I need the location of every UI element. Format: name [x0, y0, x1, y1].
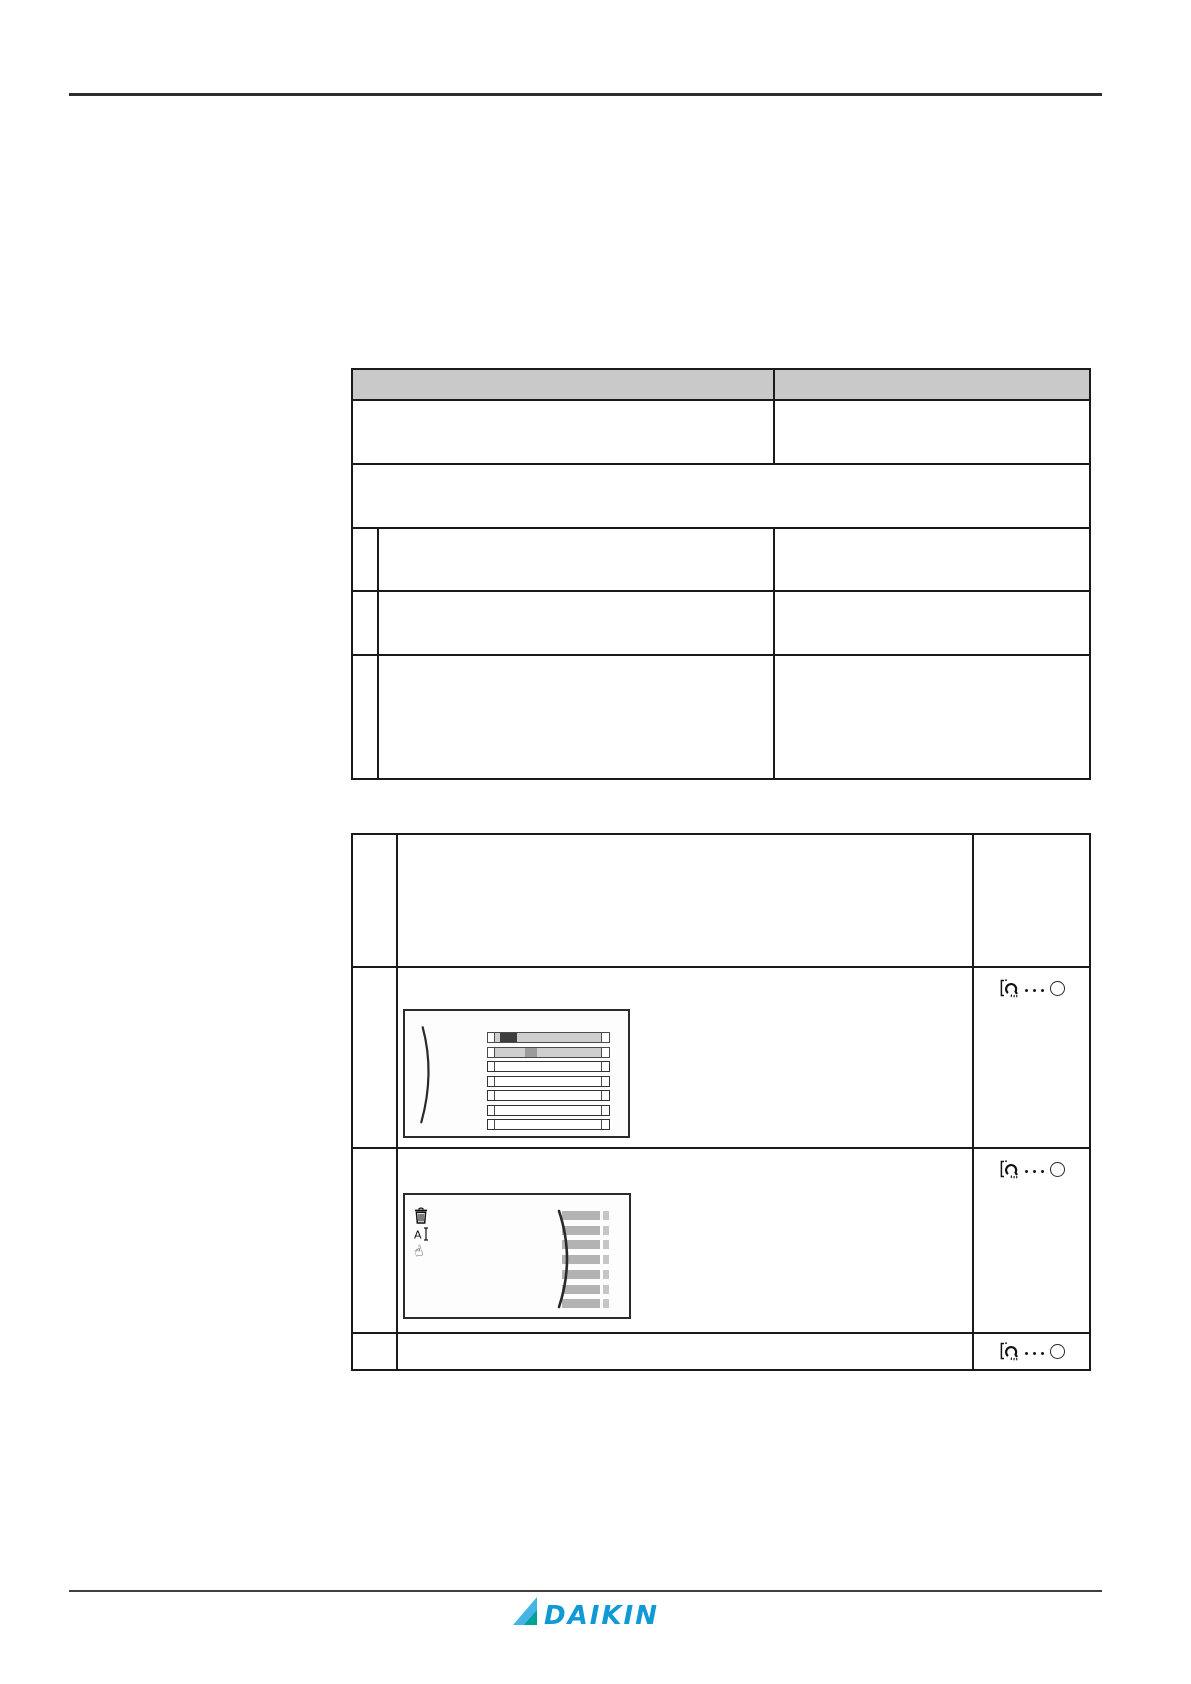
ellipsis-dot	[1025, 1170, 1028, 1173]
table1-row4-marker-cell	[352, 591, 378, 655]
table1-row2-merged-cell	[352, 464, 1090, 528]
ellipsis-dot	[1033, 989, 1036, 992]
menu-line-bar	[487, 1105, 610, 1116]
table1-row3-cell-right	[774, 528, 1090, 591]
ellipsis-dot	[1041, 1170, 1044, 1173]
menu-line-bar	[487, 1119, 610, 1130]
menu-line-bar	[487, 1032, 610, 1043]
table2-row1-cell-right	[973, 834, 1090, 967]
table1-row5-marker-cell	[352, 655, 378, 779]
table2-row3-step-cell	[352, 1148, 397, 1333]
ellipsis-dot	[1033, 1352, 1036, 1355]
button-circle-icon	[1050, 981, 1065, 996]
table2-row1-step-cell	[352, 834, 397, 967]
table2-row4-step-cell	[352, 1333, 397, 1370]
ellipsis-dot	[1025, 989, 1028, 992]
press-hold-button-indicator	[998, 978, 1065, 998]
table2-row1-cell-middle	[397, 834, 973, 967]
press-hold-button-indicator	[998, 1159, 1065, 1179]
header-rule	[69, 93, 1102, 96]
table1-row3-marker-cell	[352, 528, 378, 591]
table1-row4-cell-middle	[378, 591, 774, 655]
screen-bezel-curve	[405, 1195, 633, 1321]
button-circle-icon	[1050, 1162, 1065, 1177]
press-hold-button-indicator	[998, 1341, 1065, 1361]
ellipsis-dot	[1025, 1352, 1028, 1355]
table2-row3-cell-right	[973, 1148, 1090, 1333]
controller-menu-screen-image	[403, 1009, 630, 1138]
table1-header-cell-right	[774, 369, 1090, 400]
menu-line-bar	[487, 1076, 610, 1087]
table2-row4-cell-right	[973, 1333, 1090, 1370]
table1-row5-cell-middle	[378, 655, 774, 779]
menu-line-bar	[487, 1047, 610, 1058]
ellipsis-dot	[1041, 989, 1044, 992]
button-circle-icon	[1050, 1344, 1065, 1359]
table-2: A ☝	[351, 833, 1091, 1371]
table1-row4-cell-right	[774, 591, 1090, 655]
menu-line-bar	[487, 1090, 610, 1101]
table2-row2-step-cell	[352, 967, 397, 1148]
daikin-logo: DAIKIN	[511, 1593, 681, 1637]
controller-edit-screen-image: A ☝	[403, 1193, 631, 1319]
table-1	[351, 368, 1091, 780]
daikin-wordmark: DAIKIN	[544, 1601, 659, 1631]
table1-header-cell-left	[352, 369, 774, 400]
press-and-hold-icon	[998, 1159, 1022, 1179]
table1-row3-cell-middle	[378, 528, 774, 591]
table1-row1-cell-left	[352, 400, 774, 464]
table2-row2-cell-middle	[397, 967, 973, 1148]
ellipsis-dot	[1033, 1170, 1036, 1173]
table1-row5-cell-right	[774, 655, 1090, 779]
table2-row4-cell-middle	[397, 1333, 973, 1370]
press-and-hold-icon	[998, 978, 1022, 998]
table1-row1-cell-right	[774, 400, 1090, 464]
table2-row3-cell-middle: A ☝	[397, 1148, 973, 1333]
document-page: A ☝	[0, 0, 1191, 1684]
menu-line-bar	[487, 1061, 610, 1072]
ellipsis-dot	[1041, 1352, 1044, 1355]
table2-row2-cell-right	[973, 967, 1090, 1148]
footer-rule	[69, 1590, 1102, 1592]
press-and-hold-icon	[998, 1341, 1022, 1361]
